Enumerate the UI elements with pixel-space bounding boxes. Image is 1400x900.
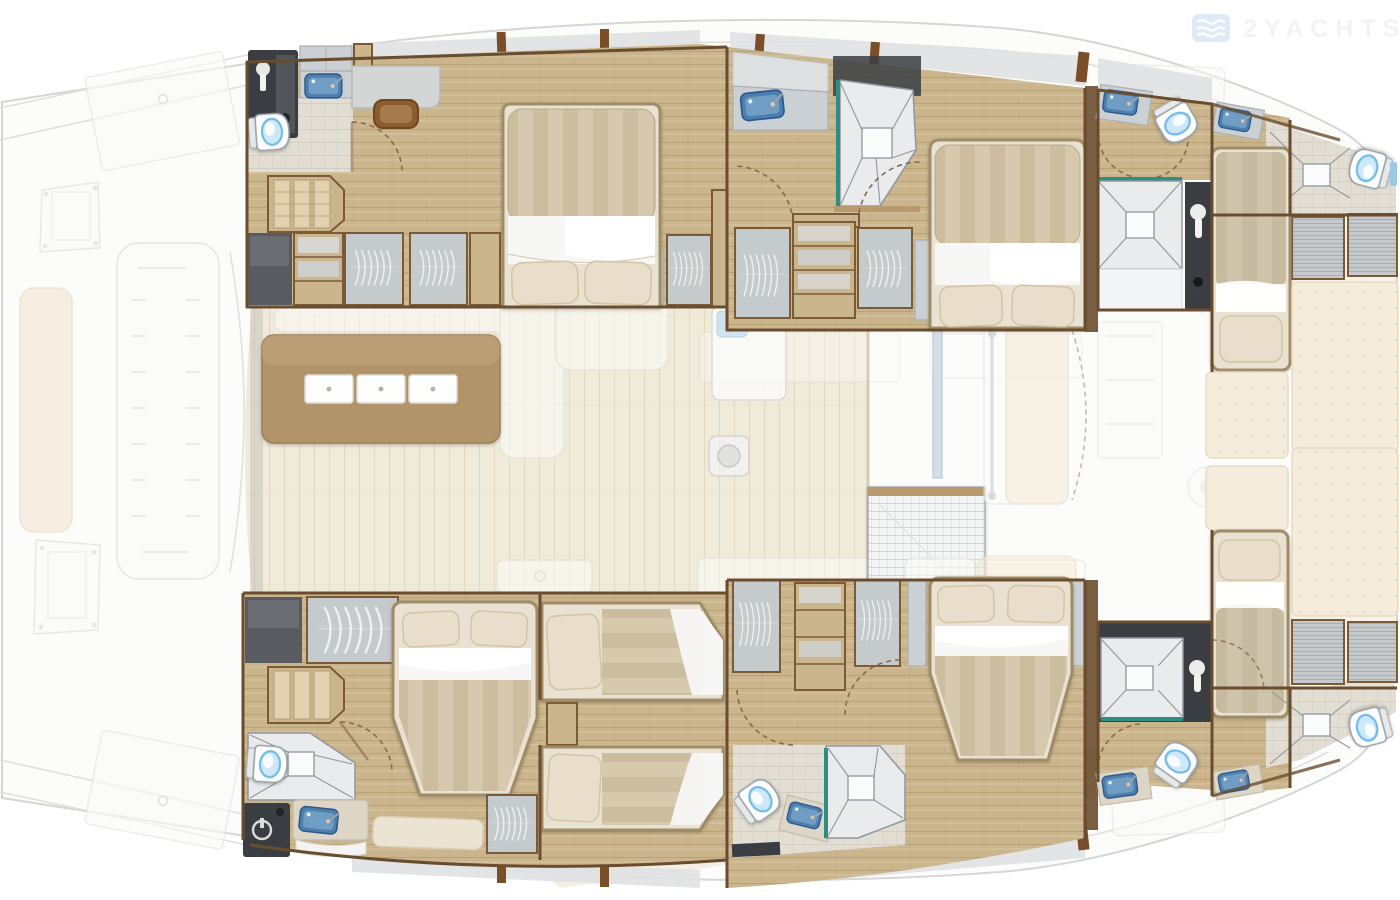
yacht-deck-plan-canvas: 2YACHTS [0,0,1400,900]
head-aft-starboard [1096,622,1212,805]
deck-plan-svg: 2YACHTS [0,0,1400,900]
shower [1101,638,1183,719]
vanity-unit [293,800,368,857]
cockpit-sliding-door [933,312,942,478]
companionway-shadow [250,308,263,592]
bed-bench [373,816,484,850]
door-accent [1390,162,1397,186]
vanity-unit [1096,767,1152,806]
wood-column [470,233,500,305]
dark-wall-locker [1185,182,1212,310]
nightstand [547,703,577,745]
roller-wardrobe [1292,620,1397,684]
hanging-wardrobe [487,795,537,853]
bed-double [393,602,537,795]
salon-table [262,335,500,443]
shelf-column [795,583,845,690]
bed-single [542,747,723,830]
hanging-wardrobe [307,597,398,663]
hanging-wardrobe [410,233,467,305]
nightstand [908,580,926,666]
table-leaf-panels [305,375,457,403]
cabin-forward-starboard [243,593,727,866]
sink [740,90,785,122]
aft-cabinet-upper [1098,322,1162,458]
bed-double [930,140,1085,328]
windlass-platform-top [40,182,100,252]
cabin-midship-starboard [727,578,1098,888]
roller-wardrobe [1292,214,1397,279]
vanity-unit [300,46,352,98]
hanging-wardrobe [345,233,403,305]
bed-single [1212,148,1290,370]
seat-shelf [268,667,344,723]
shower [1098,181,1182,310]
hanging-wardrobe [858,228,912,308]
cabin-forward-port [247,44,728,307]
dark-strip [732,842,781,857]
hanging-wardrobe [733,580,780,672]
bed-single [542,603,723,700]
table-pedestal [709,436,749,476]
sink [305,74,342,98]
bed-double [503,104,660,307]
vanity-unit [733,52,828,130]
brand-wordmark: 2YACHTS [1243,15,1400,43]
seat-shelf [268,176,344,232]
bow-seat-pad [20,288,72,532]
shelf-column [793,222,855,318]
salon-lounge-seat [500,300,564,458]
toilet [248,113,290,152]
cabin-midship-port [727,47,1098,332]
sink [298,806,338,835]
toilet [246,745,288,784]
foredeck-bench [117,243,219,579]
bed-double [930,578,1072,760]
windlass-platform-bottom [34,540,100,634]
hanging-wardrobe [735,228,790,318]
hanging-wardrobe [667,235,711,305]
head-aft-port [1096,85,1212,310]
hanging-wardrobe [855,580,900,666]
sink [1102,772,1139,799]
watermark: 2YACHTS [1192,14,1400,43]
